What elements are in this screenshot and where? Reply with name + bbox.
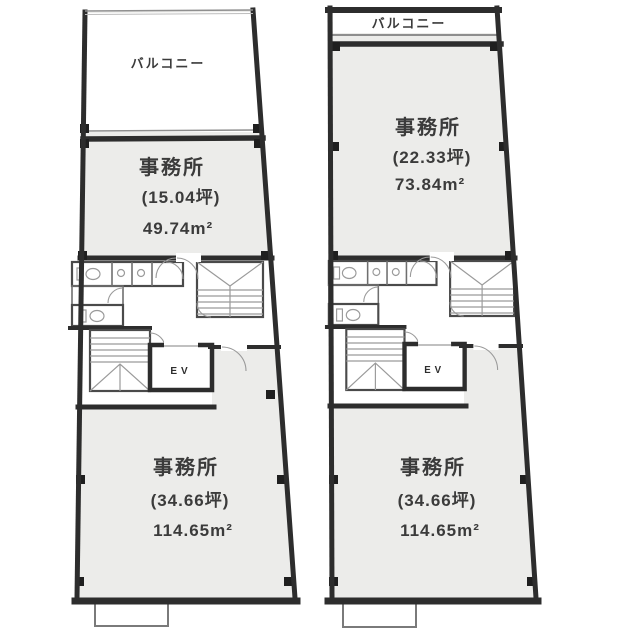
office-tsubo: (22.33坪) xyxy=(393,148,472,167)
left-plan: バルコニー 事務所 (15.04坪) 49.74m² 事務所 (34.66坪) … xyxy=(70,10,297,626)
office-tsubo: (34.66坪) xyxy=(398,491,477,510)
floorplan-page: EV xyxy=(0,0,630,630)
right-plan: バルコニー 事務所 (22.33坪) 73.84m² 事務所 (34.66坪) … xyxy=(327,8,538,627)
floorplan-canvas: EV xyxy=(0,0,630,630)
balcony-area xyxy=(84,12,261,132)
balcony-label: バルコニー xyxy=(131,56,206,71)
office-name: 事務所 xyxy=(400,455,466,479)
office-area: 49.74m² xyxy=(143,219,213,238)
office-tsubo: (15.04坪) xyxy=(142,188,221,207)
office-area: 114.65m² xyxy=(400,521,480,540)
office-area: 114.65m² xyxy=(153,521,233,540)
office-area: 73.84m² xyxy=(395,175,465,194)
office-upper-label: 事務所 (22.33坪) 73.84m² xyxy=(393,115,472,194)
office-tsubo: (34.66坪) xyxy=(151,491,230,510)
office-name: 事務所 xyxy=(153,455,219,479)
office-name: 事務所 xyxy=(139,155,205,179)
balcony-label: バルコニー xyxy=(372,16,447,31)
office-name: 事務所 xyxy=(395,115,461,139)
